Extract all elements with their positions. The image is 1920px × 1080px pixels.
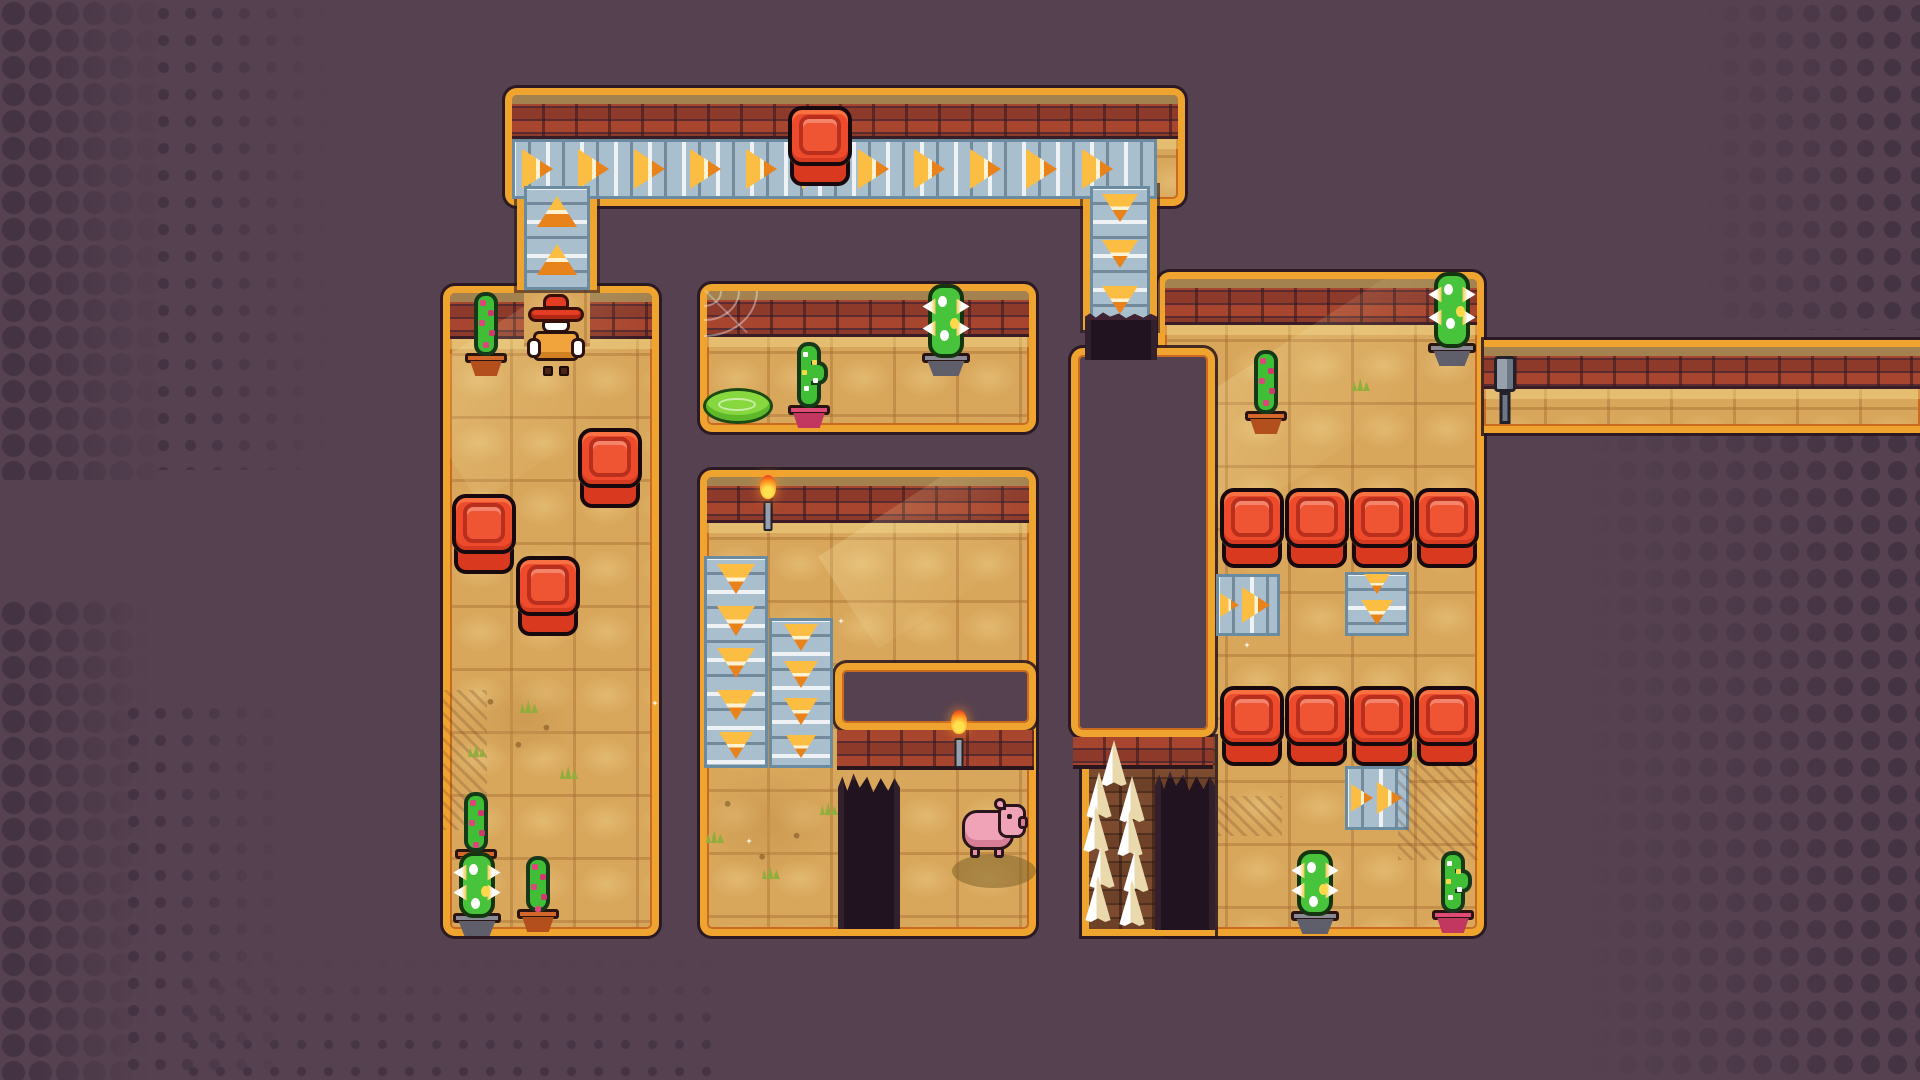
- belt-arrow-down-icon: [784, 661, 818, 688]
- belt-arrow-down-icon: [717, 690, 755, 720]
- belt-arrow-down-icon: [717, 606, 755, 636]
- belt-arrow-right-icon: [858, 149, 889, 189]
- conveyor-belt-down-a: [704, 556, 768, 768]
- pot-body: [468, 361, 504, 376]
- slime-puddle: [703, 388, 773, 424]
- thorn-spike: [488, 885, 501, 901]
- thorn-spike: [1463, 287, 1476, 303]
- pig: [962, 796, 1028, 858]
- wall-brick-face: [1484, 347, 1920, 389]
- torch-flame: [760, 475, 776, 499]
- potted-cactus: [1426, 851, 1480, 933]
- floor-highlight: [1484, 389, 1920, 399]
- spiky-cactus: [1423, 270, 1481, 366]
- block-inset: [1426, 497, 1468, 537]
- pig-leg: [994, 847, 1004, 858]
- spiky-cactus: [917, 282, 975, 376]
- halftone-bottom-left-small: [120, 700, 300, 1080]
- red-block: [1220, 488, 1284, 568]
- spiky-cactus-body: [1297, 850, 1333, 916]
- block-inset: [589, 437, 631, 477]
- torch-stick: [764, 501, 773, 531]
- spiky-cactus-body: [1434, 272, 1470, 348]
- belt-arrow-right-icon: [1242, 587, 1270, 623]
- red-block: [1285, 488, 1349, 568]
- thorn-spike: [488, 865, 501, 881]
- conveyor-belt-down-c: [1345, 572, 1409, 636]
- belt-arrow-down-icon: [784, 624, 818, 651]
- cowboy-boot: [543, 366, 553, 376]
- block-inset: [1296, 695, 1338, 735]
- belt-arrow-right-icon: [1082, 149, 1113, 189]
- red-block: [1285, 686, 1349, 766]
- shade-hatch: [1398, 760, 1478, 860]
- conveyor-belt-right-1: [1216, 574, 1280, 636]
- block-inset: [1361, 497, 1403, 537]
- cowboy-arm: [527, 338, 541, 358]
- spiky-cactus-body: [928, 284, 964, 358]
- pot-body: [1294, 919, 1336, 934]
- halftone-bottom-left-large: [0, 600, 160, 1080]
- dirt-patch: [468, 676, 580, 762]
- cactus-body: [1441, 851, 1465, 913]
- pit-floor-hole: [838, 772, 900, 929]
- wall-top: [1071, 348, 1215, 737]
- red-block: [1350, 488, 1414, 568]
- belt-arrow-right-icon: [522, 149, 553, 189]
- conveyor-belt-down-shaft: [1090, 186, 1150, 330]
- potted-cactus: [515, 856, 561, 932]
- block-inset: [1426, 695, 1468, 735]
- thorn-spike: [957, 298, 970, 314]
- block-inset: [1296, 497, 1338, 537]
- red-block: [516, 556, 580, 636]
- red-block: [1350, 686, 1414, 766]
- pit-chasm-right-of-spikes: [1155, 770, 1215, 930]
- potted-cactus: [782, 342, 836, 428]
- room-corridor-right: [1484, 340, 1920, 433]
- wall-torch: [757, 475, 779, 531]
- cactus-arm: [1455, 869, 1472, 893]
- spiky-cactus-body: [459, 852, 495, 918]
- wall-torch: [948, 710, 970, 768]
- block-inset: [1231, 497, 1273, 537]
- block-inset: [799, 115, 841, 155]
- pot-body: [791, 413, 827, 428]
- wall-brick-face: [837, 730, 1034, 770]
- cowboy-boot: [559, 366, 569, 376]
- belt-arrow-right-icon: [1220, 593, 1239, 617]
- belt-arrow-right-icon: [690, 149, 721, 189]
- block-inset: [527, 565, 569, 605]
- belt-arrow-right-icon: [1351, 784, 1373, 812]
- pot-body: [456, 921, 498, 936]
- floor-highlight: [707, 337, 1029, 347]
- thorn-spike: [454, 885, 467, 901]
- shade-hatch: [1218, 796, 1282, 836]
- belt-arrow-down-icon: [1361, 600, 1393, 625]
- spiky-cactus: [1285, 848, 1345, 934]
- pig-snout: [1018, 816, 1028, 829]
- pot-body: [1248, 419, 1284, 434]
- block-inset: [1361, 695, 1403, 735]
- block-inset: [463, 503, 505, 543]
- pig-ear: [994, 798, 1006, 810]
- halftone-top-left-small: [150, 0, 340, 470]
- cactus-body: [797, 342, 821, 408]
- belt-arrow-down-icon: [784, 698, 818, 725]
- belt-arrow-down-icon: [1364, 574, 1390, 594]
- spiky-cactus: [447, 850, 507, 936]
- pot-body: [1435, 918, 1471, 933]
- belt-arrow-right-icon: [914, 149, 945, 189]
- cactus-arm: [811, 361, 828, 385]
- belt-arrow-up-icon: [537, 244, 577, 275]
- lever-stem: [1500, 392, 1511, 424]
- red-block: [788, 106, 852, 186]
- red-block: [578, 428, 642, 508]
- belt-arrow-up-icon: [537, 196, 577, 227]
- halftone-top-right: [1690, 0, 1920, 330]
- conveyor-belt-down-b: [769, 618, 833, 768]
- belt-arrow-right-icon: [578, 149, 609, 189]
- thorn-spike: [923, 298, 936, 314]
- wall-top: [835, 663, 1036, 730]
- belt-arrow-down-icon: [1102, 240, 1138, 268]
- cactus-body: [526, 856, 550, 912]
- halftone-top-left-large: [0, 0, 180, 480]
- halftone-bottom-strip: [180, 950, 720, 1080]
- cactus-body: [464, 792, 488, 852]
- conveyor-belt-up-shaft: [524, 186, 590, 290]
- belt-arrow-right-icon: [1026, 149, 1057, 189]
- wall-brick-face: [1073, 737, 1213, 769]
- player-cowboy: [527, 294, 585, 376]
- belt-arrow-down-icon: [719, 732, 753, 759]
- pot-body: [925, 361, 967, 376]
- cowboy-hat-crown: [543, 294, 569, 309]
- pot-body: [1431, 351, 1473, 366]
- pot-body: [520, 917, 556, 932]
- thorn-spike: [1292, 883, 1305, 899]
- torch-stick: [955, 738, 964, 768]
- lever-cap: [1494, 356, 1516, 392]
- belt-arrow-right-icon: [746, 149, 777, 189]
- thorn-spike: [1429, 310, 1442, 326]
- wall-central-chasm: [1071, 348, 1215, 769]
- belt-arrow-right-icon: [970, 149, 1001, 189]
- belt-arrow-down-icon: [1102, 194, 1138, 222]
- cowboy-arm: [571, 338, 585, 358]
- pit-shaft-mouth: [1085, 312, 1157, 360]
- cactus-body: [1254, 350, 1278, 414]
- potted-cactus: [1240, 350, 1292, 434]
- mud-puddle: [952, 854, 1036, 888]
- block-inset: [1231, 695, 1273, 735]
- red-block: [1415, 488, 1479, 568]
- belt-arrow-down-icon: [1102, 286, 1138, 314]
- pig-leg: [970, 847, 980, 858]
- belt-arrow-down-icon: [717, 564, 755, 594]
- thorn-spike: [923, 321, 936, 337]
- red-block: [452, 494, 516, 574]
- thorn-spike: [1326, 863, 1339, 879]
- red-block: [1220, 686, 1284, 766]
- halftone-bottom-right: [1560, 430, 1920, 1080]
- belt-arrow-down-icon: [717, 648, 755, 678]
- spider-web: [704, 291, 758, 337]
- thorn-spike: [1326, 883, 1339, 899]
- dirt-patch: [700, 772, 838, 878]
- thorn-spike: [957, 321, 970, 337]
- slime-highlight: [718, 398, 756, 412]
- belt-arrow-right-icon: [634, 149, 665, 189]
- thorn-spike: [1429, 287, 1442, 303]
- lever-pipe: [1492, 356, 1518, 424]
- game-viewport[interactable]: [0, 0, 1920, 1080]
- potted-cactus: [462, 292, 510, 376]
- thorn-spike: [1463, 310, 1476, 326]
- cactus-body: [474, 292, 498, 356]
- belt-arrow-down-icon: [786, 735, 816, 758]
- pig-eye: [1007, 814, 1012, 819]
- wall-interior-mid-room: [835, 663, 1036, 770]
- cowboy-hat-brim: [528, 307, 584, 322]
- red-block: [1415, 686, 1479, 766]
- thorn-spike: [1292, 863, 1305, 879]
- thorn-spike: [454, 865, 467, 881]
- torch-flame: [951, 710, 967, 734]
